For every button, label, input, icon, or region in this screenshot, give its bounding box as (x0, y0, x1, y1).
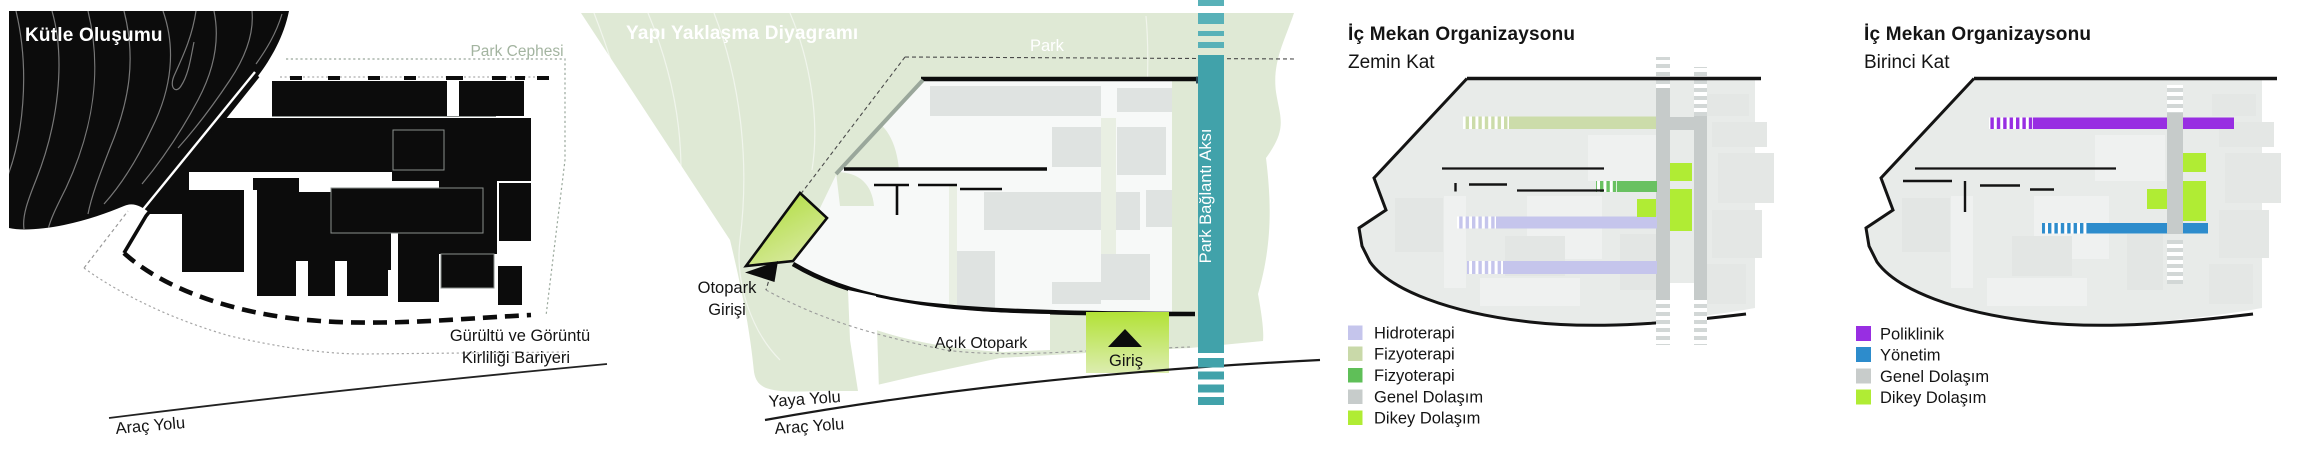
svg-text:Genel Dolaşım: Genel Dolaşım (1374, 389, 1483, 407)
svg-text:Dikey Dolaşım: Dikey Dolaşım (1374, 410, 1480, 428)
svg-text:Kirliliği Bariyeri: Kirliliği Bariyeri (462, 349, 570, 367)
svg-text:Park Bağlantı Aksı: Park Bağlantı Aksı (1197, 129, 1215, 264)
svg-text:Kütle Oluşumu: Kütle Oluşumu (25, 25, 163, 46)
svg-text:Giriş: Giriş (1109, 352, 1143, 370)
svg-text:Fizyoterapi: Fizyoterapi (1374, 367, 1455, 385)
svg-text:İç Mekan Organizaysonu: İç Mekan Organizaysonu (1864, 24, 2091, 45)
svg-text:Dikey Dolaşım: Dikey Dolaşım (1880, 389, 1986, 407)
svg-text:Yönetim: Yönetim (1880, 347, 1941, 365)
svg-text:Genel Dolaşım: Genel Dolaşım (1880, 368, 1989, 386)
svg-text:İç Mekan Organizaysonu: İç Mekan Organizaysonu (1348, 24, 1575, 45)
svg-text:Hidroterapi: Hidroterapi (1374, 325, 1455, 343)
svg-text:Park: Park (1030, 37, 1065, 55)
svg-text:Açık Otopark: Açık Otopark (935, 335, 1028, 352)
svg-text:Yapı Yaklaşma Diyagramı: Yapı Yaklaşma Diyagramı (626, 23, 858, 44)
svg-text:Birinci Kat: Birinci Kat (1864, 52, 1950, 73)
svg-text:Zemin Kat: Zemin Kat (1348, 52, 1435, 73)
svg-text:Park Cephesi: Park Cephesi (470, 43, 563, 60)
svg-text:Fizyoterapi: Fizyoterapi (1374, 346, 1455, 364)
svg-text:Otopark: Otopark (698, 279, 757, 297)
svg-text:Girişi: Girişi (708, 301, 746, 319)
svg-text:Gürültü ve Görüntü: Gürültü ve Görüntü (450, 327, 590, 345)
svg-text:Poliklinik: Poliklinik (1880, 326, 1945, 344)
